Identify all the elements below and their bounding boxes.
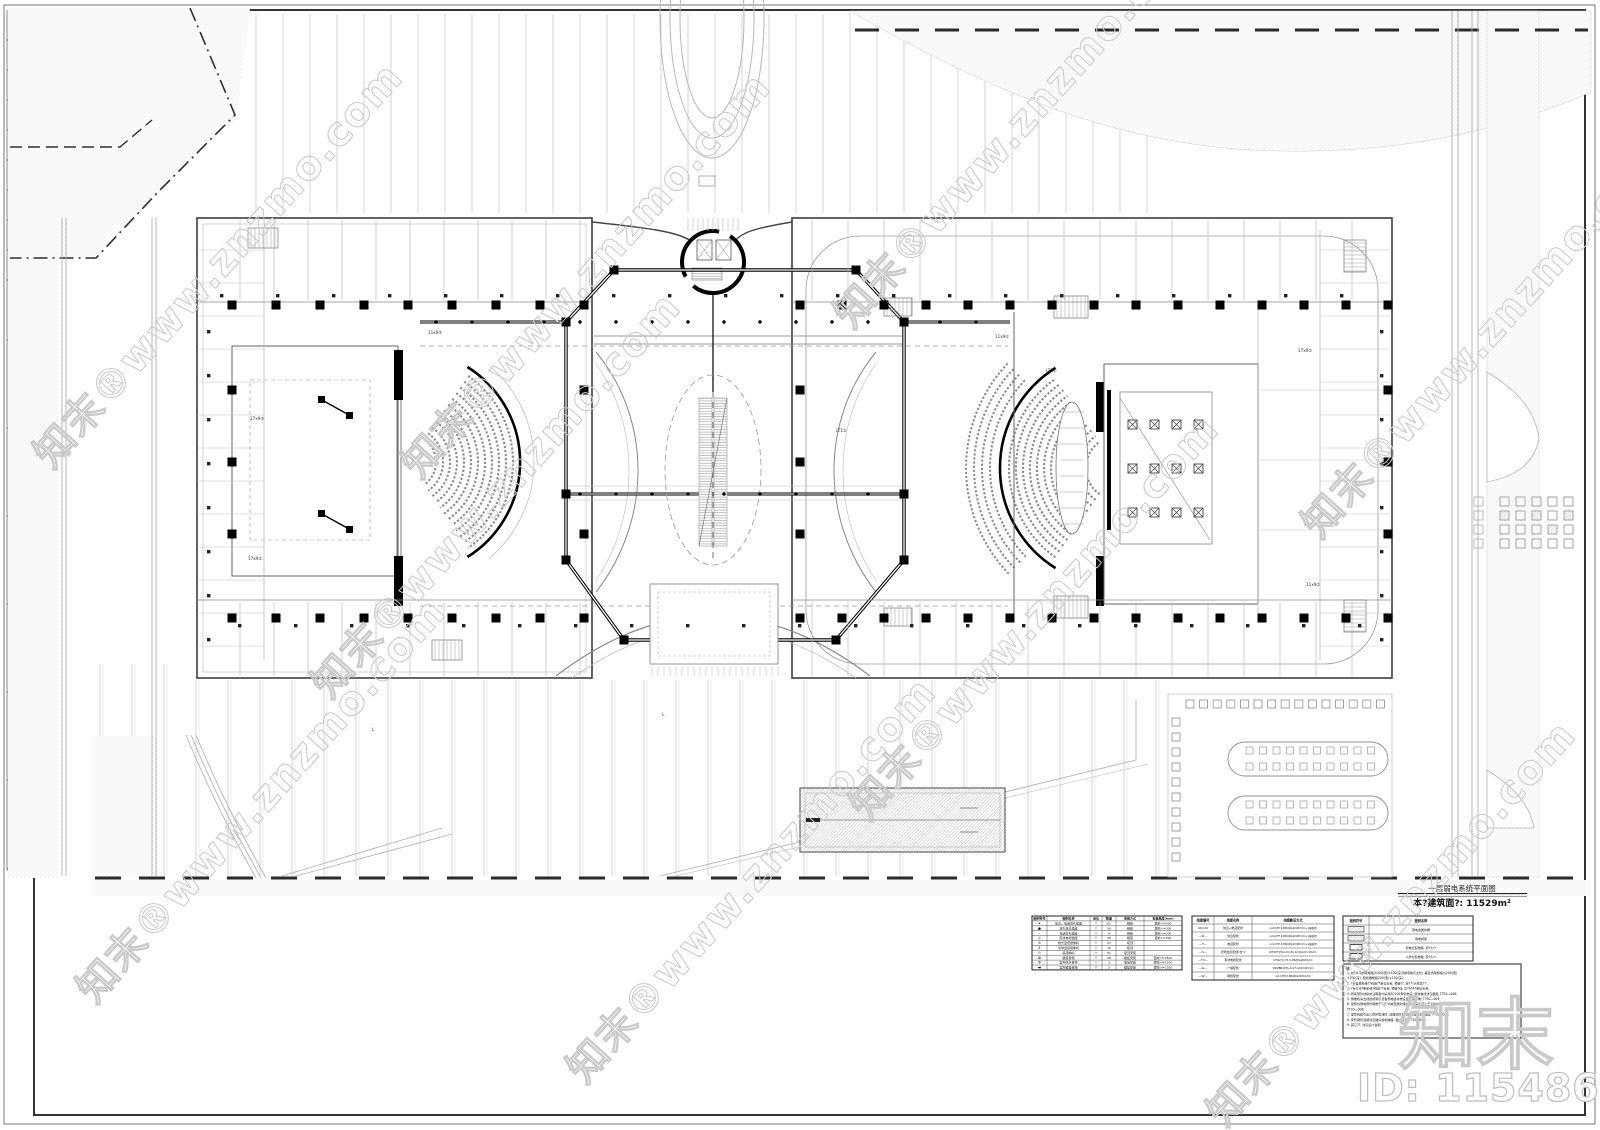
device-dot	[650, 492, 653, 495]
plan-text: 个	[1094, 966, 1097, 970]
column-marker	[796, 458, 805, 467]
column-marker	[404, 301, 413, 310]
column-marker	[1342, 614, 1351, 623]
paver	[1240, 700, 1248, 708]
tree-paver	[1474, 511, 1483, 520]
legend-symbol: ●	[1038, 926, 1041, 930]
note-line: TT30—006;	[1346, 1007, 1364, 1011]
room-code-label: LT1①	[836, 428, 847, 433]
plan-text: 吸顶安装	[1124, 950, 1136, 955]
legend-symbol: ⊙	[1038, 951, 1041, 955]
device	[1380, 506, 1383, 509]
paver	[1341, 801, 1348, 808]
cable-code: —T—	[1199, 942, 1207, 946]
south-lobby	[650, 584, 778, 664]
column-marker	[316, 301, 325, 310]
device	[238, 624, 241, 627]
paver	[1341, 763, 1348, 770]
device-dot	[902, 320, 905, 323]
paver	[1273, 817, 1280, 824]
plan-text: 10	[1107, 946, 1111, 950]
cable-spec: nx1(UTP 6-MR/JDG20)WC/CC+1根备用	[1269, 942, 1317, 946]
paver	[1295, 700, 1303, 708]
paver	[1172, 718, 1180, 726]
plan-text: 暗装	[1127, 921, 1133, 926]
paver	[1172, 733, 1180, 741]
cable-name: 有线电视配线	[1224, 957, 1241, 962]
cable-name: 广播配线	[1227, 965, 1239, 970]
paver	[1314, 747, 1321, 754]
device	[1284, 294, 1287, 297]
paver	[1172, 748, 1180, 756]
paver	[1300, 801, 1307, 808]
legend-header: 单位	[1093, 916, 1099, 921]
paver	[1314, 817, 1321, 824]
plan-text: 距地 H=1500	[1154, 961, 1172, 965]
device	[612, 294, 615, 297]
room-code-label: LT3①	[1046, 368, 1057, 373]
column-marker	[620, 636, 629, 645]
paver	[1246, 817, 1253, 824]
column-marker	[1384, 301, 1393, 310]
column-marker	[492, 301, 501, 310]
device	[966, 624, 969, 627]
paver	[1341, 817, 1348, 824]
legend-symbol: ·	[1039, 931, 1040, 935]
paver	[1172, 853, 1180, 861]
column-marker	[796, 301, 805, 310]
column-marker	[492, 614, 501, 623]
paver	[1308, 700, 1316, 708]
paver	[1172, 823, 1180, 831]
plan-text: 暗装	[1127, 935, 1133, 940]
column-marker	[796, 614, 805, 623]
plan-text: 个	[1094, 946, 1097, 950]
tree-paver	[1500, 511, 1509, 520]
paver	[1363, 700, 1371, 708]
paver	[1327, 817, 1334, 824]
device	[1060, 294, 1063, 297]
legend-header: 安装高度(mm)	[1153, 916, 1175, 921]
plan-text: 吸顶	[1127, 946, 1133, 950]
column-marker	[316, 614, 325, 623]
plan-text: 61	[1107, 922, 1111, 926]
device-dot	[614, 320, 617, 323]
device-dot	[866, 492, 869, 495]
device-dot	[470, 320, 473, 323]
legend-header: 图例符号	[1033, 916, 1045, 921]
paver	[1213, 700, 1221, 708]
cable-name: 信息配线	[1227, 933, 1239, 938]
device	[854, 624, 857, 627]
proscenium	[394, 350, 403, 400]
tree-paver	[1474, 497, 1483, 506]
plan-text: 个	[1094, 931, 1097, 935]
paver	[1368, 801, 1375, 808]
device	[444, 294, 447, 297]
column-marker	[1132, 301, 1141, 310]
paver	[1260, 817, 1267, 824]
cable-name: 网络配线	[1227, 973, 1239, 978]
plan-text: 落地安装	[1124, 960, 1136, 965]
plan-text: 暗装	[1127, 930, 1133, 935]
column-marker	[900, 556, 909, 565]
device	[724, 294, 727, 297]
device	[630, 624, 633, 627]
plan-text: 个	[1094, 951, 1097, 955]
device	[207, 506, 210, 509]
paver	[1273, 801, 1280, 808]
device	[742, 624, 745, 627]
cable-code: —TV—	[1198, 958, 1208, 962]
plan-text: 个	[1094, 922, 1097, 926]
device	[276, 294, 279, 297]
legend-name: 信息、电话双孔插座	[1055, 921, 1082, 926]
device	[1172, 294, 1175, 297]
column-marker	[562, 556, 571, 565]
device	[1380, 374, 1383, 377]
paver	[1327, 801, 1334, 808]
paver	[1314, 801, 1321, 808]
tree-paver	[1564, 525, 1573, 534]
paver	[1349, 700, 1357, 708]
legend-name: 壁挂音箱	[1062, 955, 1074, 960]
column-marker	[1048, 301, 1057, 310]
column-marker	[580, 530, 589, 539]
room-code-label: L	[662, 712, 665, 717]
column-marker	[272, 614, 281, 623]
cable-header: 线缆敷设方式	[1283, 917, 1303, 922]
proscenium	[1096, 382, 1104, 432]
device-dot	[722, 320, 725, 323]
plan-rect	[318, 396, 325, 403]
room-code-label: 17x9①	[1298, 348, 1312, 353]
device	[462, 624, 465, 627]
plan-text: 个	[1094, 936, 1097, 940]
column-marker	[1258, 301, 1267, 310]
device-dot	[506, 320, 509, 323]
column-marker	[1258, 614, 1267, 623]
device-dot	[686, 320, 689, 323]
device-dot	[758, 320, 761, 323]
note-line: 9. 其它??, 详见设计说明.	[1347, 1022, 1381, 1027]
cable-code: —S—	[1199, 950, 1207, 954]
plan-text: 28	[1107, 956, 1111, 960]
legend-name: 半球监控摄像机	[1058, 945, 1079, 950]
plan-rect	[318, 510, 325, 517]
legend-symbol: ✦	[1038, 922, 1041, 926]
device	[518, 624, 521, 627]
paver	[1376, 700, 1384, 708]
plan-text: 个	[1094, 941, 1097, 945]
device	[207, 638, 210, 641]
cable-header: 线缆名称	[1227, 917, 1241, 922]
device	[1134, 624, 1137, 627]
tree-paver	[1548, 497, 1557, 506]
paver	[1327, 747, 1334, 754]
legend-header: 图例名称	[1062, 916, 1074, 921]
plan-text: 21	[1107, 941, 1111, 945]
column-marker	[922, 301, 931, 310]
device	[910, 624, 913, 627]
cable-name: 电话配线	[1227, 941, 1239, 946]
device	[1078, 624, 1081, 627]
cable-code: —G—	[1199, 966, 1207, 970]
plan-rect	[346, 526, 353, 533]
legend-name: 双孔信息插座	[1059, 925, 1077, 930]
plan-text: 暗装	[1127, 925, 1133, 930]
green-area	[8, 258, 58, 878]
column-marker	[1132, 614, 1141, 623]
paver	[1354, 801, 1361, 808]
device	[207, 462, 210, 465]
legend-name: 室外壁挂音箱	[1059, 965, 1077, 970]
paver	[1281, 700, 1289, 708]
paver	[1246, 801, 1253, 808]
device	[1302, 624, 1305, 627]
column-marker	[228, 386, 237, 395]
tree-paver	[1548, 539, 1557, 548]
device-dot	[830, 492, 833, 495]
device-dot	[830, 320, 833, 323]
column-marker	[1174, 614, 1183, 623]
device-dot	[974, 320, 977, 323]
cable-header: 线缆编号	[1197, 917, 1211, 922]
paver	[1300, 763, 1307, 770]
paver	[1246, 763, 1253, 770]
device	[798, 624, 801, 627]
parking-zone	[1168, 694, 1392, 877]
road-line	[282, 828, 442, 876]
paver	[1273, 763, 1280, 770]
column-marker	[922, 614, 931, 623]
green-area	[95, 880, 1590, 896]
room-code-label: 11x9②	[1306, 582, 1320, 587]
device	[1228, 294, 1231, 297]
cable-spec: nx1(UTP 6-MR/JDG20)WC/CC	[1275, 974, 1311, 978]
column-marker	[1006, 301, 1015, 310]
column-marker	[832, 636, 841, 645]
device	[1004, 294, 1007, 297]
paver	[1287, 817, 1294, 824]
legend-symbol: ⊠	[1038, 956, 1041, 960]
plan-text: 吸顶	[1127, 941, 1133, 945]
cable-name: 信息+电话配线	[1223, 925, 1243, 930]
device	[1380, 550, 1383, 553]
device	[780, 294, 783, 297]
paver	[1368, 763, 1375, 770]
column-marker	[1300, 301, 1309, 310]
plan-text: 3	[1108, 961, 1110, 965]
plan-text: 距地 H=2500	[1154, 956, 1172, 960]
plan-text: 距地 H=1300	[1154, 966, 1172, 970]
device-dot	[686, 492, 689, 495]
plan-text: 个	[1094, 926, 1097, 930]
column-marker	[1216, 614, 1225, 623]
device	[574, 624, 577, 627]
column-marker	[360, 301, 369, 310]
paver	[1227, 700, 1235, 708]
paver	[1368, 817, 1375, 824]
device	[207, 374, 210, 377]
device-dot	[722, 492, 725, 495]
legend-name: 电话双孔插座	[1059, 930, 1077, 935]
cable-name: 安防监控配线(含?)	[1221, 949, 1245, 954]
paver	[1287, 801, 1294, 808]
paver	[1260, 747, 1267, 754]
plan-rect	[346, 412, 353, 419]
legend-name: 吸顶喇叭	[1062, 950, 1074, 955]
escalator	[714, 398, 727, 546]
column-marker	[1090, 614, 1099, 623]
device	[207, 594, 210, 597]
column-marker	[1384, 614, 1393, 623]
device-dot	[578, 320, 581, 323]
paver	[1260, 763, 1267, 770]
paver	[1300, 817, 1307, 824]
column-marker	[964, 301, 973, 310]
device	[332, 294, 335, 297]
column-marker	[1342, 301, 1351, 310]
tree-paver	[1474, 539, 1483, 548]
device	[294, 624, 297, 627]
device	[207, 330, 210, 333]
green-area	[850, 11, 1591, 151]
column-marker	[228, 530, 237, 539]
legend-name: 室外防水音柱	[1059, 960, 1077, 965]
device-dot	[434, 320, 437, 323]
paver	[1322, 700, 1330, 708]
column-marker	[796, 530, 805, 539]
device	[207, 418, 210, 421]
paver	[1341, 747, 1348, 754]
column-marker	[900, 490, 909, 499]
column-marker	[1384, 530, 1393, 539]
column-marker	[838, 614, 847, 623]
plan-text: 距地 H=300	[1155, 931, 1171, 935]
plan-text: 距地 H=300	[1155, 926, 1171, 930]
plan-text: 距地 H=300	[1155, 922, 1171, 926]
paver	[1246, 747, 1253, 754]
paver	[1354, 763, 1361, 770]
vip-seat-block	[1056, 402, 1088, 534]
legend-header: 安装方式	[1124, 916, 1136, 921]
box-name: 弱电桥架	[1415, 936, 1427, 941]
paver	[1172, 808, 1180, 816]
plan-text: 距地 H=300	[1155, 936, 1171, 940]
paver	[1172, 793, 1180, 801]
device	[1380, 594, 1383, 597]
tree-paver	[1532, 511, 1541, 520]
legend-symbol: ▬	[1038, 966, 1041, 970]
legend-symbol: ⊘	[1038, 941, 1041, 945]
paver	[1368, 747, 1375, 754]
paver	[1172, 778, 1180, 786]
paver	[1273, 747, 1280, 754]
escalator	[699, 398, 712, 546]
column-marker	[448, 301, 457, 310]
plan-text: 3	[1108, 966, 1110, 970]
device	[1116, 294, 1119, 297]
device-dot	[938, 320, 941, 323]
road-line	[296, 834, 452, 876]
device	[1380, 638, 1383, 641]
cable-spec: WDZBN-RYJS-2x1.5-SC20/WC/CC	[1273, 966, 1314, 970]
plan-text: 4	[1108, 931, 1110, 935]
paver	[1314, 763, 1321, 770]
circular-core	[682, 231, 744, 293]
column-marker	[796, 386, 805, 395]
device	[1380, 330, 1383, 333]
plan-text: 51	[1107, 951, 1111, 955]
room-code-label: 17x9②	[248, 556, 262, 561]
plan-text: 28	[1107, 936, 1111, 940]
watermark-id: ID: 1154862728	[1357, 1066, 1600, 1110]
device	[1358, 624, 1361, 627]
paver	[1254, 700, 1262, 708]
device-dot	[578, 492, 581, 495]
device	[500, 294, 503, 297]
tree-paver	[1474, 525, 1483, 534]
device-dot	[758, 492, 761, 495]
room-code-label: L	[372, 727, 375, 732]
column-marker	[1384, 386, 1393, 395]
device	[1340, 294, 1343, 297]
tree-paver	[1564, 511, 1573, 520]
column-marker	[1174, 301, 1183, 310]
device	[388, 294, 391, 297]
paver	[1327, 763, 1334, 770]
cable-code: 40×20	[1198, 926, 1208, 930]
green-area	[95, 736, 157, 876]
column-marker	[228, 301, 237, 310]
column-marker	[1090, 301, 1099, 310]
plan-text: 个	[1094, 956, 1097, 960]
tree-paver	[1564, 539, 1573, 548]
column-marker	[880, 614, 889, 623]
paver	[1287, 763, 1294, 770]
column-marker	[580, 614, 589, 623]
room-code-label: 17x9②	[250, 416, 264, 421]
tree-paver	[1548, 525, 1557, 534]
plan-text: 壁挂安装	[1124, 965, 1136, 970]
paver	[1300, 747, 1307, 754]
cable-spec: nx2(UTP 6-MR/JDG20)WC/CC+1根备用	[1269, 926, 1317, 930]
device-dot	[794, 320, 797, 323]
paver	[1186, 700, 1194, 708]
paver	[1268, 700, 1276, 708]
legend-symbol: ◎	[1038, 936, 1041, 940]
cable-spec: SYWV(Y)-75-5-MR/JDG20WC/CC	[1273, 958, 1313, 962]
legend-symbol: Φ	[1038, 961, 1041, 965]
legend-name: 枪式监控摄像机	[1058, 940, 1079, 945]
box-name: 人防分配电箱, 安?大??	[1406, 954, 1437, 959]
column-marker	[964, 614, 973, 623]
room-code-label: 11x9②	[428, 330, 442, 335]
cable-code: —D—	[1199, 934, 1207, 938]
paver	[1354, 817, 1361, 824]
column-marker	[1300, 614, 1309, 623]
legend-name: 有线电视插座	[1059, 935, 1077, 940]
paver	[1172, 763, 1180, 771]
cable-spec: nx1(UTP 6-MR/JDG20)WC/CC+1根备用	[1269, 934, 1317, 938]
paver	[1260, 801, 1267, 808]
device	[686, 624, 689, 627]
plan-text: 56	[1107, 926, 1111, 930]
column-marker	[228, 458, 237, 467]
column-marker	[1216, 301, 1225, 310]
box-name: 弱电分配电箱, 安?大??	[1406, 945, 1437, 950]
